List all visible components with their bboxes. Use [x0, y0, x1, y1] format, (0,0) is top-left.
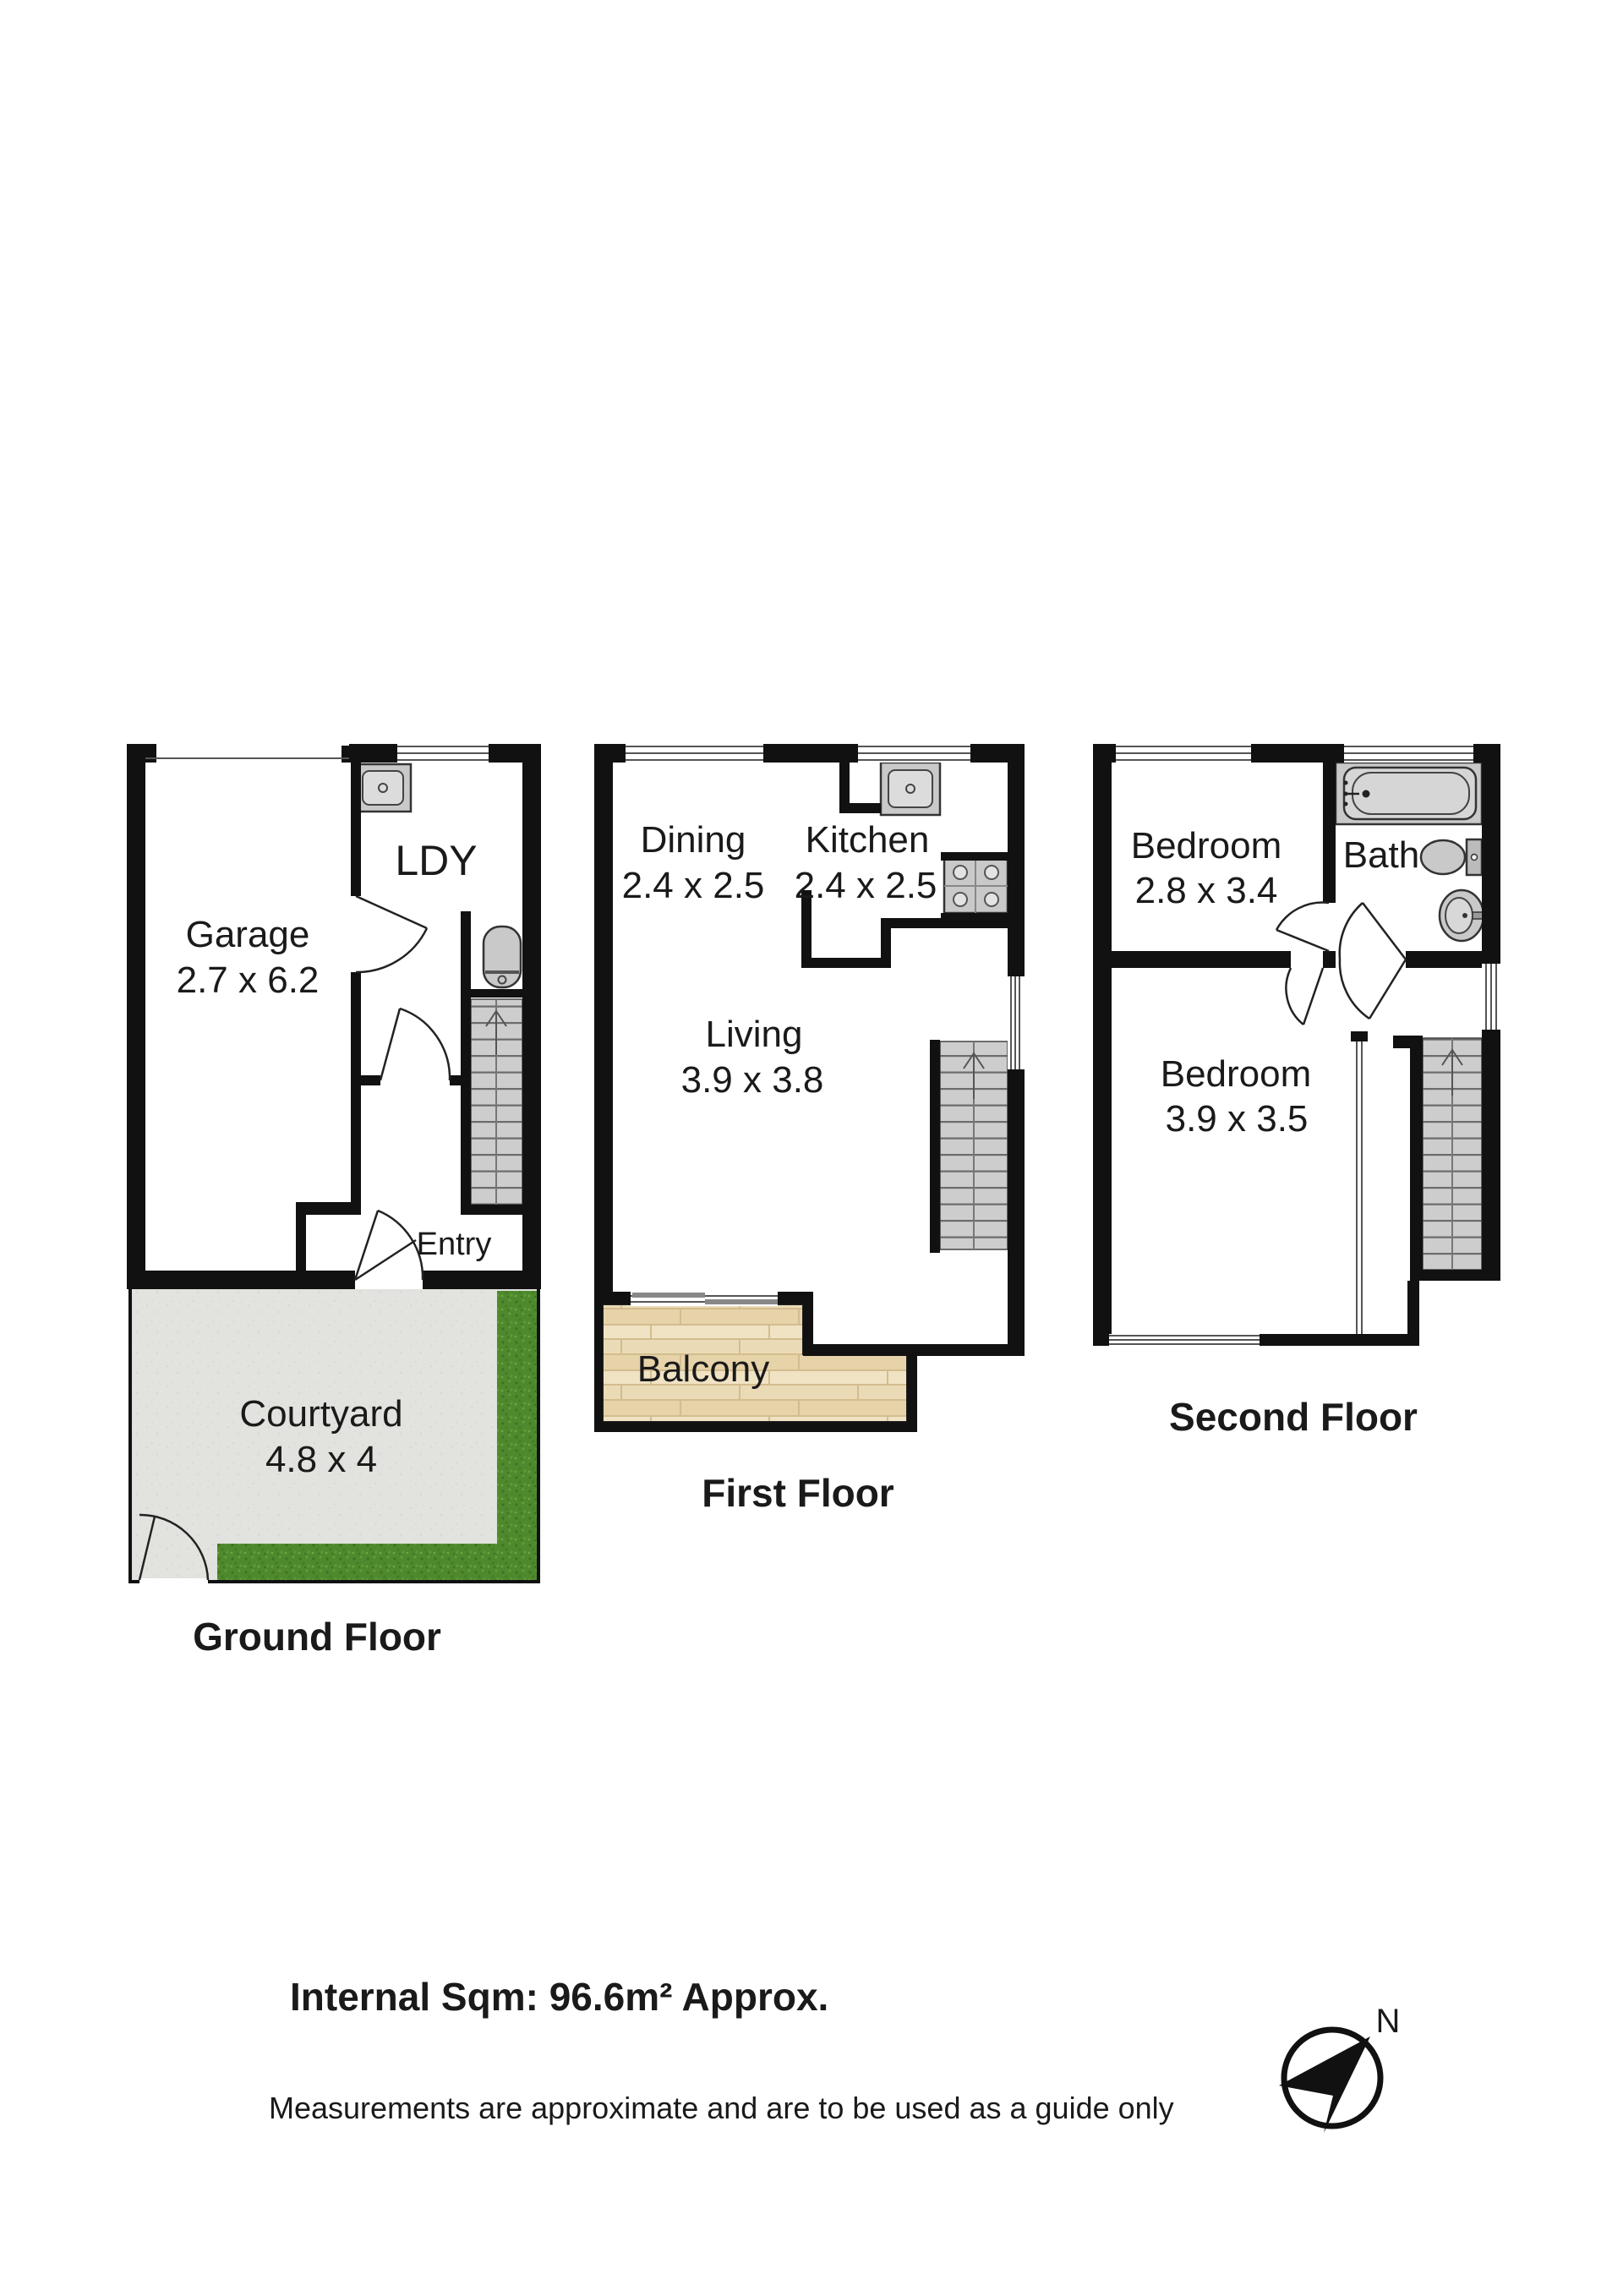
internal-area-text: Internal Sqm: 96.6m² Approx. [290, 1975, 828, 2019]
water-heater-icon [484, 927, 521, 987]
room-label-bedroom1: Bedroom [1131, 825, 1282, 866]
room-label-kitchen: Kitchen [806, 819, 930, 861]
room-label-courtyard: Courtyard [239, 1393, 402, 1435]
compass-icon: N [1279, 2003, 1400, 2133]
floor-title-ground: Ground Floor [193, 1615, 441, 1659]
grass-strip-bottom [217, 1544, 538, 1581]
first-floor-plan: Dining 2.4 x 2.5 Kitchen 2.4 x 2.5 Livin… [594, 744, 1025, 1515]
landing-side-window [1482, 964, 1500, 1030]
dining-window [626, 744, 763, 763]
staircase-second-icon [1423, 1038, 1482, 1270]
room-dims-courtyard: 4.8 x 4 [265, 1439, 377, 1480]
courtyard-area [130, 1289, 538, 1586]
room-label-garage: Garage [186, 914, 310, 955]
bedroom1-window [1116, 744, 1251, 763]
kitchen-sink-icon [881, 763, 940, 815]
laundry-sink-icon [355, 764, 411, 812]
room-label-balcony: Balcony [637, 1348, 770, 1390]
room-dims-dining: 2.4 x 2.5 [622, 865, 765, 906]
room-dims-garage: 2.7 x 6.2 [177, 959, 320, 1001]
room-label-bath: Bath [1343, 834, 1420, 876]
ground-floor-plan: Garage 2.7 x 6.2 LDY Entry Courtyard 4.8… [127, 744, 541, 1659]
bedroom2-window [1109, 1334, 1260, 1346]
room-label-dining: Dining [641, 819, 746, 861]
room-dims-bedroom1: 2.8 x 3.4 [1135, 870, 1278, 911]
floor-title-second: Second Floor [1169, 1395, 1418, 1439]
grass-strip-right [497, 1291, 538, 1581]
room-label-entry: Entry [417, 1227, 492, 1262]
floorplan-canvas: Garage 2.7 x 6.2 LDY Entry Courtyard 4.8… [0, 0, 1623, 2296]
footer: Internal Sqm: 96.6m² Approx. Measurement… [269, 1975, 1174, 2125]
room-label-living: Living [706, 1014, 803, 1055]
second-floor-plan: Bedroom 2.8 x 3.4 Bath Bedroom 3.9 x 3.5… [1093, 744, 1500, 1439]
bath-window [1344, 744, 1473, 763]
living-side-window [1008, 976, 1025, 1069]
disclaimer-text: Measurements are approximate and are to … [269, 2091, 1174, 2125]
room-dims-living: 3.9 x 3.8 [681, 1059, 824, 1101]
kitchen-window [858, 744, 970, 763]
room-dims-kitchen: 2.4 x 2.5 [795, 865, 937, 906]
north-label: N [1376, 2003, 1401, 2040]
room-dims-bedroom2: 3.9 x 3.5 [1166, 1098, 1309, 1140]
balcony-sliding-door [631, 1290, 778, 1306]
ldy-window [397, 744, 489, 763]
courtyard-paving [131, 1289, 538, 1581]
staircase-first-icon [940, 1041, 1008, 1249]
room-label-ldy: LDY [395, 837, 477, 884]
room-label-bedroom2: Bedroom [1161, 1053, 1312, 1095]
cooktop-icon [944, 859, 1008, 913]
floor-title-first: First Floor [702, 1471, 894, 1515]
toilet-icon [1421, 839, 1482, 875]
bathtub-icon [1336, 763, 1482, 824]
courtyard-gate-opening [139, 1578, 208, 1586]
staircase-ground-icon [471, 999, 522, 1205]
